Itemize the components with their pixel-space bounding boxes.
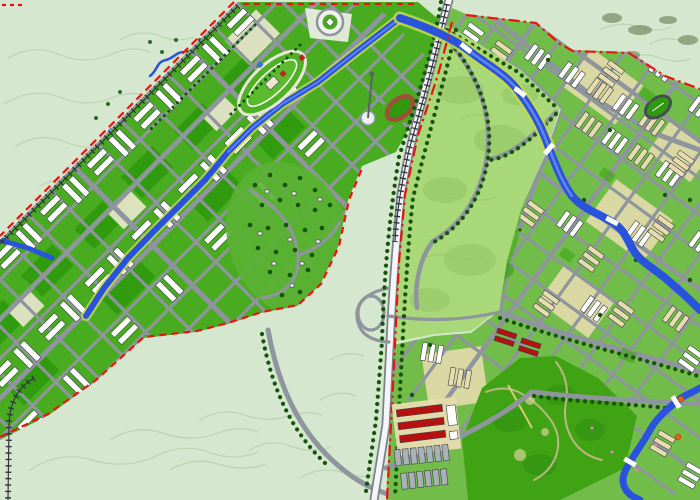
roundabout-plaza — [317, 9, 343, 35]
master-plan-map[interactable] — [0, 0, 700, 500]
map-viewport[interactable] — [0, 0, 700, 500]
